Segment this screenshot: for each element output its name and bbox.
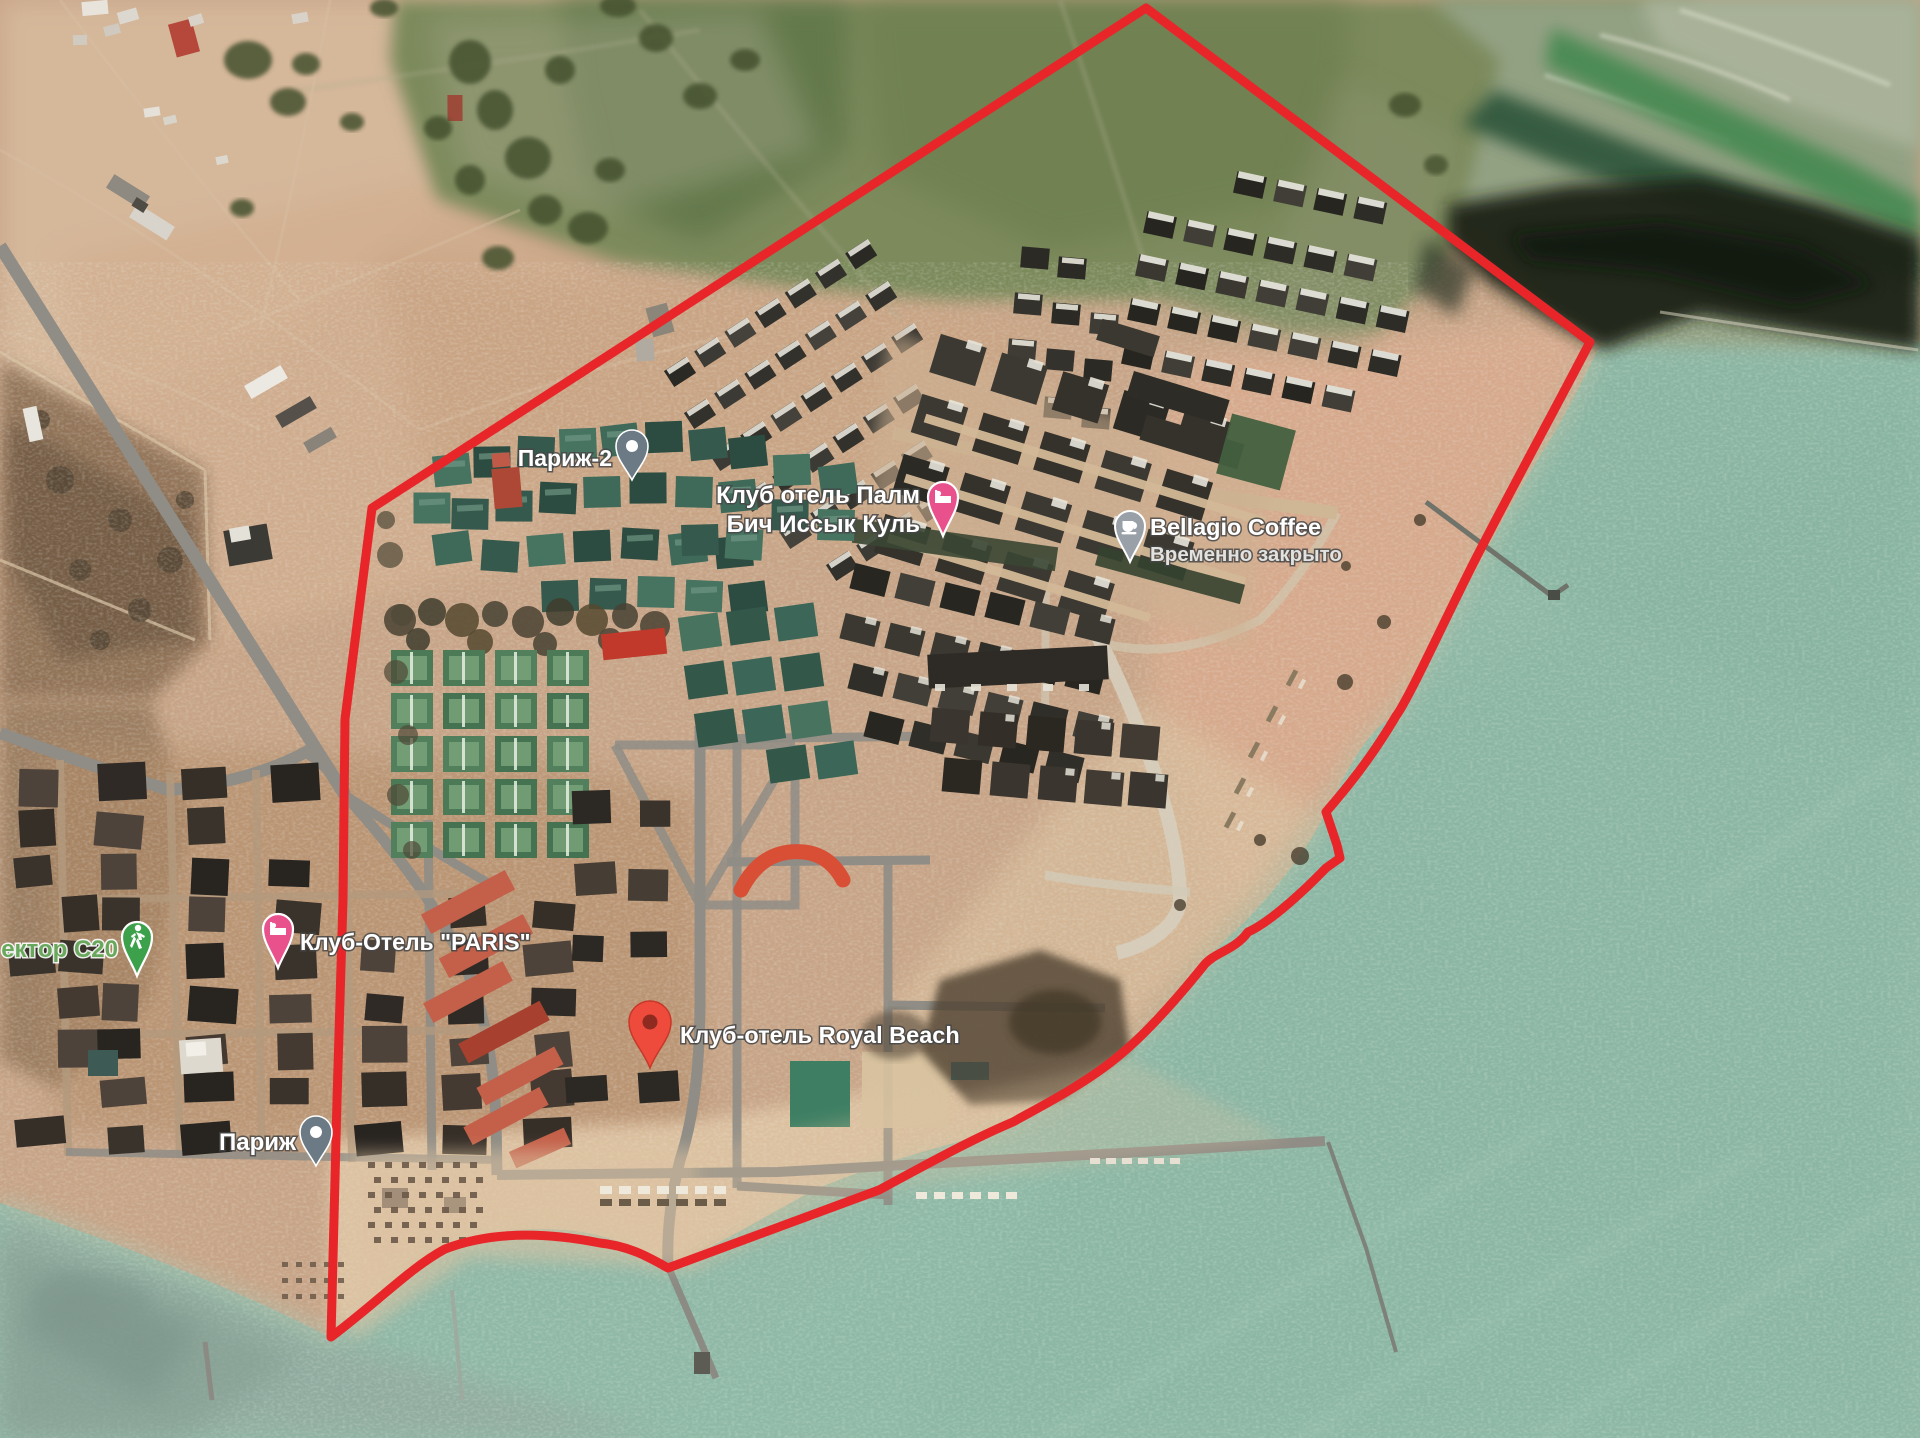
- svg-text:Клуб отель Палм: Клуб отель Палм: [716, 482, 920, 509]
- svg-text:Временно закрыто: Временно закрыто: [1150, 543, 1342, 566]
- svg-text:Клуб-Отель "PARIS": Клуб-Отель "PARIS": [300, 929, 530, 955]
- svg-text:ектор C20: ектор C20: [1, 936, 118, 963]
- svg-text:Бич Иссык Куль: Бич Иссык Куль: [727, 511, 920, 538]
- svg-text:Париж: Париж: [219, 1129, 297, 1156]
- svg-text:Клуб-отель Royal Beach: Клуб-отель Royal Beach: [680, 1022, 960, 1048]
- svg-text:Bellagio Coffee: Bellagio Coffee: [1150, 514, 1321, 540]
- svg-text:Париж-2: Париж-2: [518, 445, 612, 471]
